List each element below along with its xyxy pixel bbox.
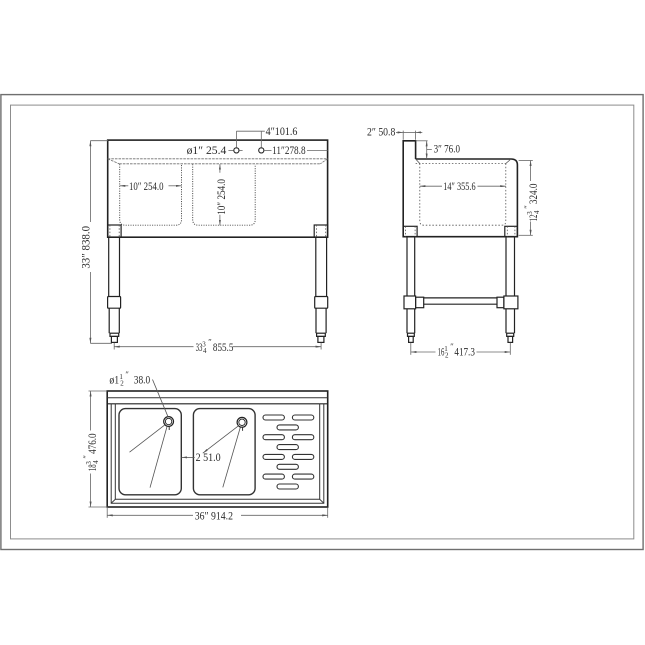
svg-text:33″ 838.0: 33″ 838.0 bbox=[80, 226, 92, 269]
svg-text:10″ 254.0: 10″ 254.0 bbox=[129, 181, 164, 193]
svg-text:2: 2 bbox=[120, 380, 124, 388]
svg-text:2: 2 bbox=[445, 352, 449, 360]
svg-text:10″ 254.0: 10″ 254.0 bbox=[216, 179, 228, 215]
svg-text:417.3: 417.3 bbox=[454, 347, 475, 359]
svg-text:11″278.8: 11″278.8 bbox=[272, 145, 306, 157]
svg-text:″: ″ bbox=[81, 455, 91, 459]
svg-text:2 51.0: 2 51.0 bbox=[196, 452, 221, 464]
svg-text:324.0: 324.0 bbox=[528, 183, 540, 204]
svg-text:″: ″ bbox=[125, 369, 129, 379]
svg-text:14″ 355.6: 14″ 355.6 bbox=[443, 181, 476, 193]
svg-text:4: 4 bbox=[533, 210, 541, 214]
svg-text:2″ 50.8: 2″ 50.8 bbox=[367, 126, 396, 138]
svg-text:ø1″ 25.4: ø1″ 25.4 bbox=[187, 145, 227, 157]
svg-text:36″ 914.2: 36″ 914.2 bbox=[195, 510, 233, 522]
svg-text:855.5: 855.5 bbox=[213, 342, 234, 354]
svg-text:38.0: 38.0 bbox=[134, 375, 151, 387]
svg-text:3″ 76.0: 3″ 76.0 bbox=[434, 144, 461, 156]
svg-text:4: 4 bbox=[203, 347, 207, 355]
svg-text:4: 4 bbox=[92, 460, 100, 464]
svg-text:″: ″ bbox=[208, 337, 212, 347]
svg-text:″: ″ bbox=[522, 205, 532, 209]
svg-text:ø1: ø1 bbox=[109, 375, 119, 387]
svg-text:4″101.6: 4″101.6 bbox=[266, 126, 298, 138]
svg-text:476.0: 476.0 bbox=[87, 433, 99, 454]
